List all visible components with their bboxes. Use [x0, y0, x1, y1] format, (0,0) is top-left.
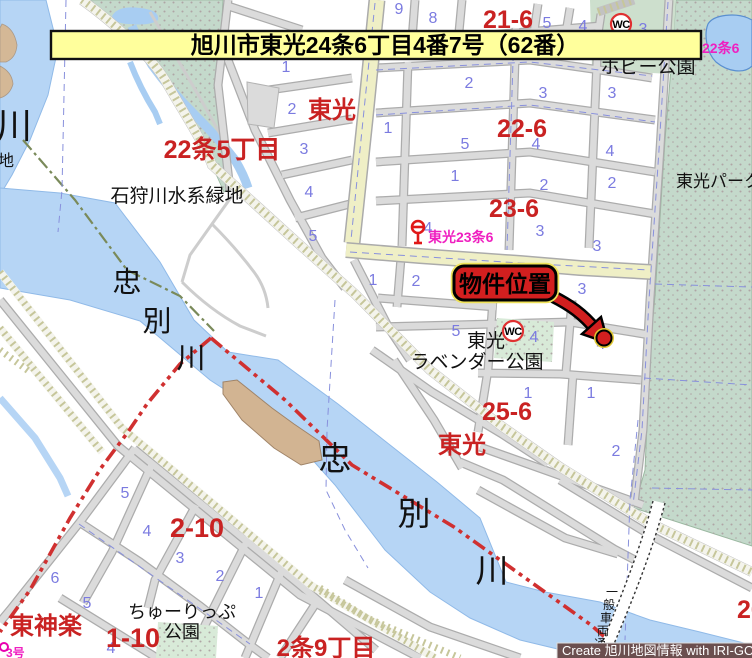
- svg-text:2: 2: [288, 101, 297, 118]
- svg-text:旭川市東光24条6丁目4番7号（62番）: 旭川市東光24条6丁目4番7号（62番）: [191, 32, 580, 58]
- svg-text:3: 3: [536, 223, 545, 240]
- svg-text:22条5丁目: 22条5丁目: [164, 136, 281, 164]
- svg-text:4: 4: [530, 329, 539, 346]
- svg-text:2: 2: [612, 443, 621, 460]
- svg-text:別: 別: [398, 497, 431, 533]
- svg-text:6: 6: [51, 570, 60, 587]
- svg-text:1: 1: [384, 120, 393, 137]
- svg-text:3: 3: [608, 85, 617, 102]
- svg-text:1: 1: [369, 272, 378, 289]
- svg-text:2: 2: [465, 75, 474, 92]
- svg-text:東光: 東光: [308, 97, 356, 124]
- svg-text:WC: WC: [504, 326, 522, 338]
- svg-text:25-6: 25-6: [482, 398, 532, 426]
- svg-text:1-10: 1-10: [106, 623, 160, 653]
- svg-text:東光: 東光: [467, 330, 505, 352]
- svg-text:4: 4: [606, 143, 615, 160]
- svg-text:地: 地: [0, 152, 14, 170]
- svg-text:公園: 公園: [164, 622, 200, 642]
- svg-text:22条6: 22条6: [702, 40, 740, 56]
- svg-text:1: 1: [282, 59, 291, 76]
- svg-text:東光パーク: 東光パーク: [676, 172, 752, 191]
- svg-text:9: 9: [395, 1, 404, 18]
- svg-text:5: 5: [121, 485, 130, 502]
- svg-text:物件位置: 物件位置: [459, 271, 551, 297]
- svg-text:ラベンダー公園: ラベンダー公園: [410, 351, 543, 373]
- svg-text:8: 8: [429, 10, 438, 27]
- svg-text:東光23条6: 東光23条6: [428, 229, 494, 245]
- svg-text:23-6: 23-6: [489, 195, 539, 223]
- svg-text:川: 川: [176, 343, 205, 375]
- svg-text:21-6: 21-6: [483, 6, 533, 34]
- svg-text:3: 3: [176, 550, 185, 567]
- svg-text:2-10: 2-10: [170, 513, 224, 543]
- svg-text:5: 5: [309, 228, 318, 245]
- svg-text:Create 旭川地図情報 with IRI-GO: Create 旭川地図情報 with IRI-GO: [562, 643, 752, 658]
- svg-text:1: 1: [587, 385, 596, 402]
- svg-text:東神楽: 東神楽: [10, 612, 83, 640]
- svg-text:東光: 東光: [438, 432, 486, 459]
- svg-text:3: 3: [593, 238, 602, 255]
- svg-text:1: 1: [451, 168, 460, 185]
- svg-text:忠: 忠: [112, 267, 141, 299]
- svg-text:一: 一: [606, 585, 618, 599]
- svg-text:22-6: 22-6: [497, 115, 547, 143]
- svg-text:WC: WC: [612, 19, 630, 31]
- svg-text:般: 般: [603, 597, 615, 612]
- svg-text:4: 4: [305, 184, 314, 201]
- svg-text:3: 3: [300, 141, 309, 158]
- svg-text:5: 5: [543, 15, 552, 32]
- svg-text:4: 4: [143, 523, 152, 540]
- svg-text:3: 3: [539, 85, 548, 102]
- svg-text:2: 2: [608, 175, 617, 192]
- svg-text:5: 5: [452, 323, 461, 340]
- svg-text:5: 5: [461, 136, 470, 153]
- svg-text:川: 川: [476, 554, 509, 590]
- svg-text:2: 2: [540, 177, 549, 194]
- svg-text:1: 1: [255, 585, 264, 602]
- svg-text:5: 5: [83, 595, 92, 612]
- svg-text:忠: 忠: [319, 442, 352, 478]
- svg-text:別: 別: [142, 306, 171, 338]
- svg-text:3: 3: [578, 281, 587, 298]
- svg-text:2: 2: [216, 568, 225, 585]
- svg-text:石狩川水系緑地: 石狩川水系緑地: [110, 185, 243, 207]
- svg-text:ちゅーりっぷ: ちゅーりっぷ: [128, 602, 236, 622]
- svg-text:2: 2: [412, 273, 421, 290]
- svg-text:車: 車: [600, 611, 612, 625]
- svg-text:両: 両: [597, 624, 609, 638]
- svg-text:2条9丁目: 2条9丁目: [277, 635, 376, 658]
- svg-text:川: 川: [0, 106, 32, 146]
- svg-text:26: 26: [737, 596, 752, 624]
